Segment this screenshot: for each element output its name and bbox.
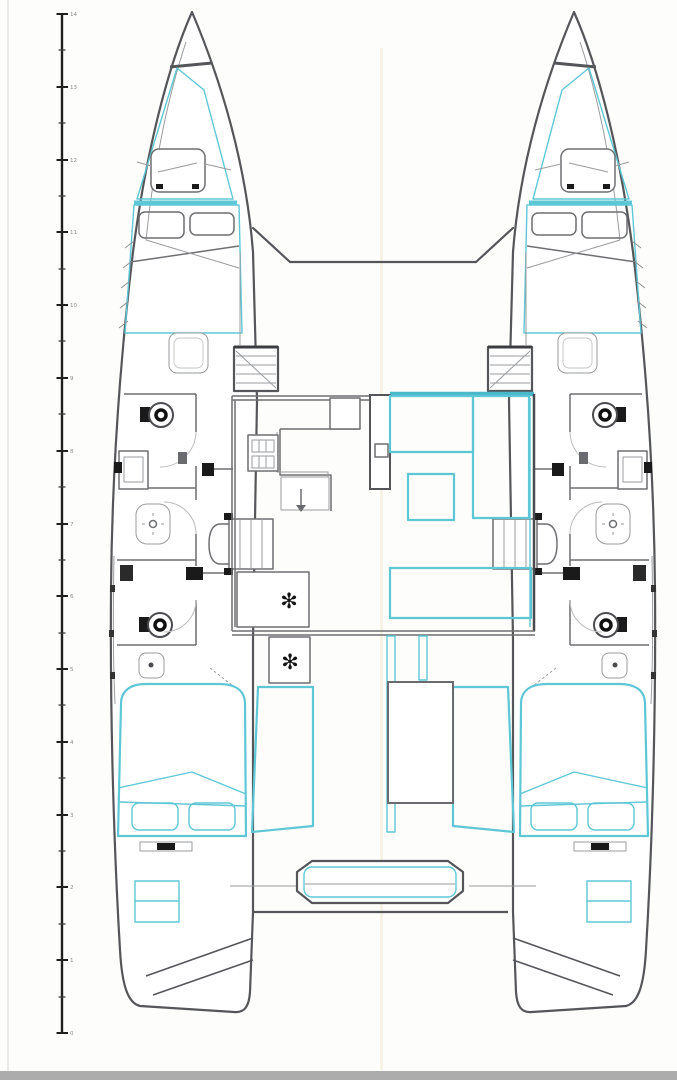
salon-seat-back xyxy=(390,396,473,452)
ruler-tick-label: 3 xyxy=(70,813,74,819)
cockpit-bench xyxy=(297,861,463,903)
ruler-tick-label: 9 xyxy=(70,376,74,382)
galley xyxy=(248,398,360,512)
galley-island xyxy=(390,568,531,618)
scale-ruler: 14 13 12 11 10 9 8 7 6 5 4 3 2 1 0 xyxy=(57,12,78,1037)
ruler-tick-label: 13 xyxy=(70,85,77,91)
floor-hatch-icon xyxy=(169,333,208,373)
ruler-tick-label: 6 xyxy=(70,594,74,600)
ruler-tick-label: 14 xyxy=(70,12,77,18)
door-handle xyxy=(186,567,203,580)
ruler-tick-label: 10 xyxy=(70,303,77,309)
door-handle xyxy=(202,463,214,476)
catamaran-floorplan: 14 13 12 11 10 9 8 7 6 5 4 3 2 1 0 xyxy=(0,0,677,1080)
bottom-scan-bar xyxy=(0,1071,677,1080)
galley-sink-icon xyxy=(281,477,329,512)
toilet-icon xyxy=(148,613,172,637)
port-hull xyxy=(109,12,297,1012)
cockpit-door-frame xyxy=(419,636,427,680)
snowflake-icon: ✻ xyxy=(281,650,299,674)
mast-post xyxy=(370,395,390,489)
ruler-tick-label: 2 xyxy=(70,885,74,891)
toilet-icon xyxy=(149,403,173,427)
snowflake-icon: ✻ xyxy=(280,589,298,613)
ruler-tick-label: 0 xyxy=(70,1031,74,1037)
shower-tray xyxy=(136,504,170,544)
salon-aft-wall xyxy=(232,631,535,635)
catamaran-floorplan-page: 14 13 12 11 10 9 8 7 6 5 4 3 2 1 0 xyxy=(0,0,677,1080)
galley-cabinet xyxy=(330,398,360,429)
salon-table xyxy=(408,474,454,520)
crossbeam-diagonal xyxy=(253,228,290,262)
ruler-tick-label: 4 xyxy=(70,740,74,746)
ruler-tick-label: 5 xyxy=(70,667,74,673)
starboard-hull-mirror xyxy=(469,12,657,1012)
door-hinge xyxy=(178,452,187,464)
ruler-tick-label: 11 xyxy=(70,230,77,236)
stove-icon xyxy=(248,435,278,471)
foredeck-steps xyxy=(234,347,278,391)
cockpit-seat-port xyxy=(252,687,313,832)
fridge-box: ✻ xyxy=(237,572,309,627)
cockpit-seat-starboard xyxy=(453,687,514,832)
cockpit-table xyxy=(388,682,453,803)
ruler-tick-label: 12 xyxy=(70,158,77,164)
ruler-tick-label: 1 xyxy=(70,958,74,964)
fridge-box: ✻ xyxy=(269,637,310,683)
centerline-artifact xyxy=(380,48,383,1070)
ruler-tick-label: 8 xyxy=(70,449,74,455)
locker-icon xyxy=(120,565,133,581)
ruler-tick-label: 7 xyxy=(70,522,74,528)
